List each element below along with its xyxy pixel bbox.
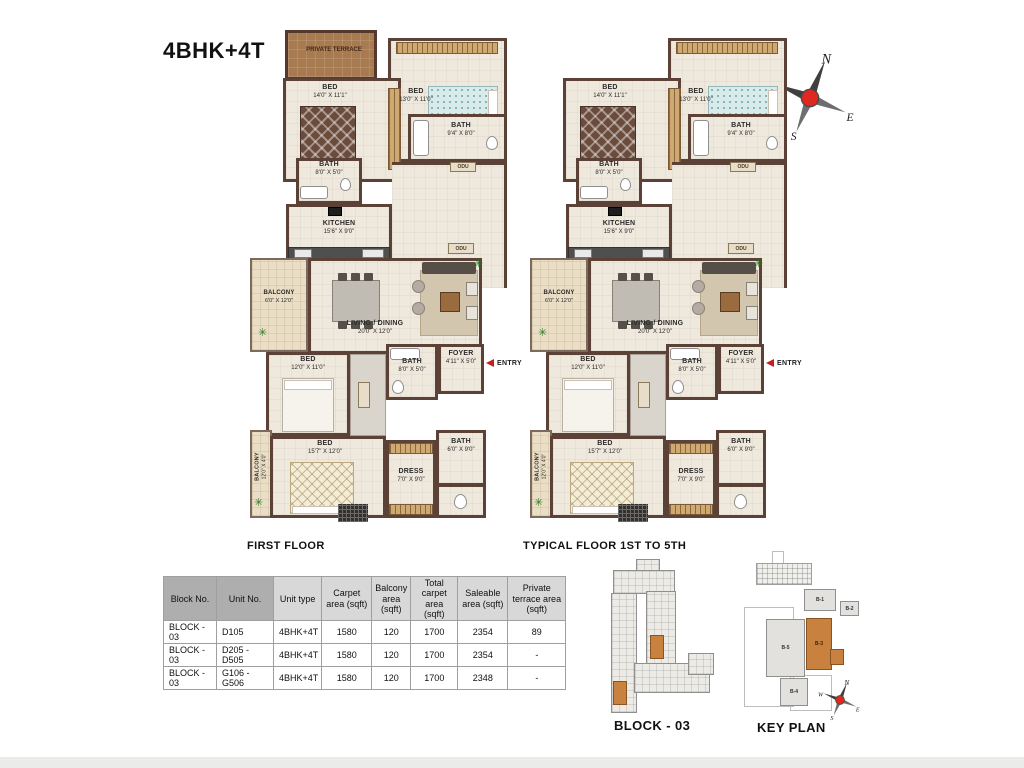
room-label: BED 12'0" X 11'0"	[558, 356, 618, 372]
table-cell: 2354	[458, 644, 508, 667]
chair	[338, 273, 347, 281]
block-units	[688, 653, 714, 675]
entry-label: ENTRY	[777, 360, 802, 367]
compass-e: E	[845, 112, 853, 124]
table-cell: 1580	[322, 667, 372, 690]
room-label: BATH 9'4" X 8'0"	[712, 122, 770, 138]
wardrobe	[396, 42, 498, 54]
coffee-table	[440, 292, 460, 312]
compass-e: E	[855, 707, 860, 713]
highlighted-unit	[650, 635, 664, 659]
pillow	[284, 380, 332, 390]
armchair	[466, 306, 478, 320]
chair	[364, 273, 373, 281]
room-label: BED 12'0" X 11'0"	[278, 356, 338, 372]
col-header: Carpet area (sqft)	[322, 577, 372, 621]
sofa	[702, 262, 756, 274]
bathtub	[580, 186, 608, 199]
room-label: KITCHEN 15'6" X 9'0"	[308, 220, 370, 236]
highlighted-unit	[613, 681, 627, 705]
room-label: BALCONY 6'0" X 12'0"	[534, 290, 584, 304]
site-grid-block	[756, 563, 812, 585]
room-label: BATH 8'0" X 5'0"	[388, 358, 436, 374]
shaft	[338, 504, 368, 522]
table-cell: 4BHK+4T	[274, 621, 322, 644]
col-header: Balcony area (sqft)	[372, 577, 411, 621]
col-header: Total carpet area (sqft)	[411, 577, 458, 621]
table-cell: 4BHK+4T	[274, 667, 322, 690]
building-b4: B-4	[780, 678, 808, 706]
table-cell: 2354	[458, 621, 508, 644]
room-label: KITCHEN 15'6" X 9'0"	[588, 220, 650, 236]
bathtub	[413, 120, 429, 156]
room-label: BED 13'0" X 11'0"	[670, 88, 722, 104]
toilet	[672, 380, 684, 394]
plant-icon: ✳	[754, 259, 763, 270]
entry-arrow-icon	[486, 359, 494, 367]
odu-box: ODU	[448, 243, 474, 254]
wardrobe	[676, 42, 778, 54]
caption-first-floor: FIRST FLOOR	[247, 540, 325, 552]
room-label: BED 14'0" X 11'1"	[578, 84, 642, 100]
table-cell: G106 - G506	[217, 667, 274, 690]
sofa	[422, 262, 476, 274]
room-label: BED 13'0" X 11'0"	[390, 88, 442, 104]
table-row: BLOCK - 03 D205 - D505 4BHK+4T 1580 120 …	[164, 644, 566, 667]
building-b5: B-5	[766, 619, 805, 677]
area-table: Block No. Unit No. Unit type Carpet area…	[163, 576, 566, 690]
room-label: BATH 6'0" X 9'0"	[438, 438, 484, 454]
table-cell: 4BHK+4T	[274, 644, 322, 667]
plant-icon: ✳	[258, 328, 267, 339]
plant-icon: ✳	[538, 328, 547, 339]
floor-plan-right: BED 13'0" X 11'0" BED 14'0" X 11'1" BATH…	[530, 28, 792, 533]
key-plan-compass: N E S W	[818, 678, 862, 722]
dining-table	[612, 280, 660, 322]
table-cell: BLOCK - 03	[164, 667, 217, 690]
building-b2: B-2	[840, 601, 859, 616]
ottoman	[692, 280, 705, 293]
table-row: BLOCK - 03 G106 - G506 4BHK+4T 1580 120 …	[164, 667, 566, 690]
toilet	[454, 494, 467, 509]
room-private-terrace: PRIVATE TERRACE	[285, 30, 377, 80]
col-header: Unit type	[274, 577, 322, 621]
table-cell: 89	[508, 621, 566, 644]
plant-icon: ✳	[534, 498, 543, 509]
table-cell: D205 - D505	[217, 644, 274, 667]
chair	[644, 273, 653, 281]
wardrobe	[669, 504, 713, 515]
building-b3-wing	[830, 649, 844, 665]
wardrobe	[669, 443, 713, 454]
room-label: FOYER 4'11" X 5'0"	[439, 350, 483, 366]
bathtub	[693, 120, 709, 156]
table-cell: BLOCK - 03	[164, 644, 217, 667]
shaft	[618, 504, 648, 522]
chair	[631, 273, 640, 281]
sink	[294, 249, 312, 258]
entry-label: ENTRY	[497, 360, 522, 367]
table-cell: BLOCK - 03	[164, 621, 217, 644]
plant-icon: ✳	[474, 259, 483, 270]
armchair	[746, 282, 758, 296]
room-label: BALCONY 6'0" X 12'0"	[254, 290, 304, 304]
dining-table	[332, 280, 380, 322]
plant-icon: ✳	[254, 498, 263, 509]
sink	[362, 249, 384, 258]
table-cell: -	[508, 644, 566, 667]
table-cell: 1580	[322, 621, 372, 644]
bathtub	[300, 186, 328, 199]
compass-w: W	[818, 692, 824, 698]
toilet	[340, 178, 351, 191]
table-cell: 2348	[458, 667, 508, 690]
table-cell: 1700	[411, 667, 458, 690]
odu-box	[638, 382, 650, 408]
entry-marker: ENTRY	[486, 359, 522, 367]
room-label: BATH 8'0" X 5'0"	[302, 161, 356, 177]
block-plan	[608, 555, 720, 705]
table-cell: 1700	[411, 644, 458, 667]
table-cell: 120	[372, 644, 411, 667]
compass-center	[834, 694, 845, 705]
col-header: Saleable area (sqft)	[458, 577, 508, 621]
armchair	[466, 282, 478, 296]
room-label: PRIVATE TERRACE	[306, 47, 362, 54]
toilet	[734, 494, 747, 509]
stove	[328, 207, 342, 216]
ottoman	[412, 302, 425, 315]
table-row: BLOCK - 03 D105 4BHK+4T 1580 120 1700 23…	[164, 621, 566, 644]
col-header: Private terrace area (sqft)	[508, 577, 566, 621]
room-label: FOYER 4'11" X 5'0"	[719, 350, 763, 366]
room-label: BED 14'0" X 11'1"	[298, 84, 362, 100]
footer-strip	[0, 757, 1024, 768]
toilet	[392, 380, 404, 394]
compass-n: N	[843, 678, 850, 687]
ottoman	[412, 280, 425, 293]
building-b1: B-1	[804, 589, 836, 611]
table-cell: D105	[217, 621, 274, 644]
table-header-row: Block No. Unit No. Unit type Carpet area…	[164, 577, 566, 621]
pillow	[564, 380, 612, 390]
ottoman	[692, 302, 705, 315]
armchair	[746, 306, 758, 320]
table-cell: 120	[372, 621, 411, 644]
odu-box: ODU	[728, 243, 754, 254]
caption-key-plan: KEY PLAN	[757, 720, 826, 735]
odu-box: ODU	[730, 162, 756, 172]
col-header: Unit No.	[217, 577, 274, 621]
entry-marker: ENTRY	[766, 359, 802, 367]
chair	[351, 273, 360, 281]
sink	[574, 249, 592, 258]
compass-center	[799, 87, 821, 109]
room-label: BED 15'7" X 12'0"	[292, 440, 358, 456]
block-units	[646, 591, 676, 673]
table-cell: 120	[372, 667, 411, 690]
coffee-table	[720, 292, 740, 312]
room-label: BATH 6'0" X 9'0"	[718, 438, 764, 454]
room-label: DRESS 7'0" X 9'0"	[388, 468, 434, 484]
room-label: DRESS 7'0" X 9'0"	[668, 468, 714, 484]
room-label: LIVING / DINING 20'0" X 12'0"	[320, 320, 430, 336]
stove	[608, 207, 622, 216]
entry-arrow-icon	[766, 359, 774, 367]
chair	[618, 273, 627, 281]
odu-box: ODU	[450, 162, 476, 172]
table-cell: -	[508, 667, 566, 690]
odu-box	[358, 382, 370, 408]
table-cell: 1580	[322, 644, 372, 667]
building-b3: B-3	[806, 618, 832, 670]
room-label: BATH 8'0" X 5'0"	[668, 358, 716, 374]
floor-plan-left: PRIVATE TERRACE BED 13'0" X 11'0" BED 14…	[250, 28, 512, 533]
room-label: BED 15'7" X 12'0"	[572, 440, 638, 456]
sink	[642, 249, 664, 258]
room-label: BATH 9'4" X 8'0"	[432, 122, 490, 138]
room-label: LIVING / DINING 20'0" X 12'0"	[600, 320, 710, 336]
caption-typical-floor: TYPICAL FLOOR 1ST TO 5TH	[523, 540, 686, 552]
compass-s: S	[830, 716, 833, 722]
caption-block-03: BLOCK - 03	[614, 718, 690, 733]
toilet	[620, 178, 631, 191]
room-label: BATH 8'0" X 5'0"	[582, 161, 636, 177]
col-header: Block No.	[164, 577, 217, 621]
wardrobe	[389, 443, 433, 454]
page: 4BHK+4T PRIVATE TERRACE BED 13'0" X 11'0…	[0, 0, 1024, 768]
table-cell: 1700	[411, 621, 458, 644]
wardrobe	[389, 504, 433, 515]
compass-n: N	[821, 51, 833, 67]
